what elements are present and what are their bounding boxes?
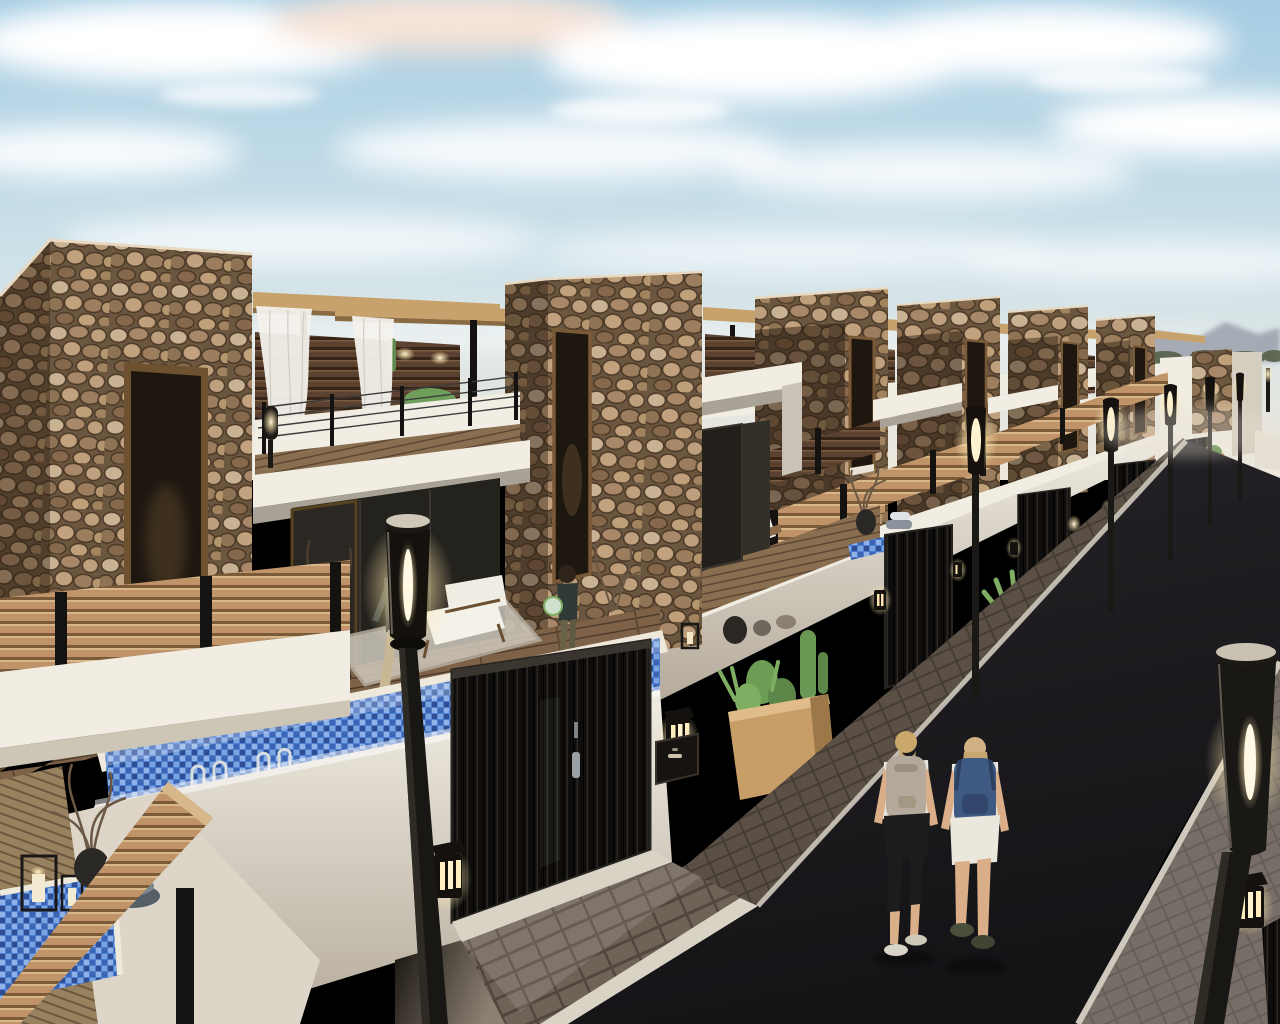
atmospheric-haze [1100,406,1280,458]
beach-ball [544,597,562,615]
pedestrian-1-capris [884,813,930,859]
cloud [850,6,1230,78]
child-head [558,565,576,583]
sconce-glow [430,351,450,365]
cloud [725,144,1135,200]
render-canvas [0,0,1280,1024]
pedestrian-1-head [895,731,917,753]
stone-tower-2 [505,272,702,670]
pedestrian-2-shorts [950,815,1000,865]
house-number-plaque [656,734,698,784]
towel-stack [886,520,912,529]
decor-vase [856,509,876,535]
architectural-render [0,0,1280,1024]
cloud [335,120,785,180]
gate-handle [572,752,580,778]
sconce-glow [395,347,415,361]
